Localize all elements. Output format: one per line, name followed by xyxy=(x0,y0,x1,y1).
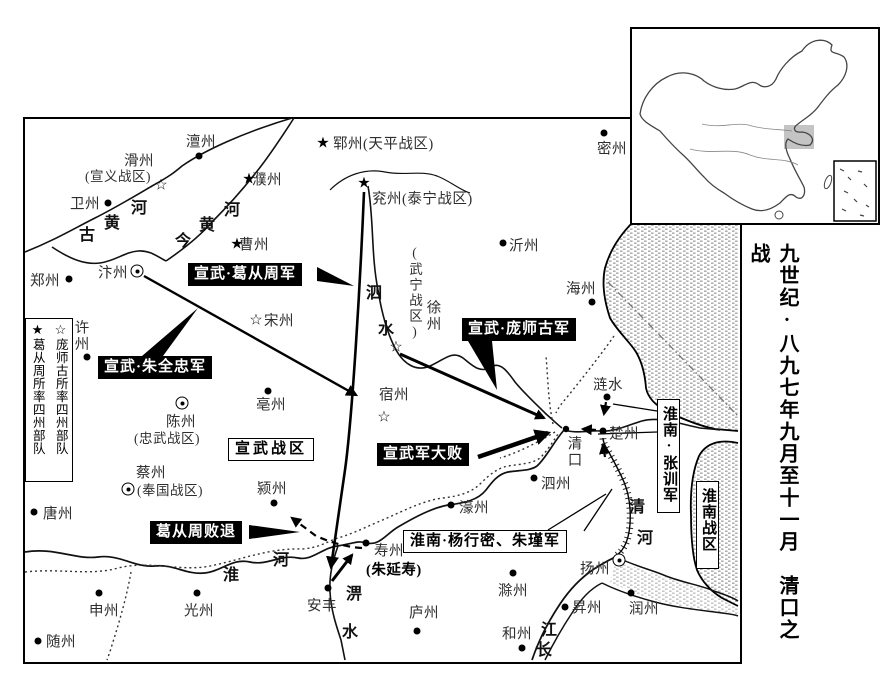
haizhou-dot xyxy=(589,299,596,306)
caizhou-note: (奉国战区) xyxy=(137,479,203,499)
bozhou-label: 亳州 xyxy=(256,394,286,415)
zone-xuanwu-box: 宣武战区 xyxy=(228,438,314,461)
luzhou-dot xyxy=(414,628,421,635)
shengzhou-dot xyxy=(562,604,569,611)
river-old-yellow-char-2: 河 xyxy=(131,194,147,218)
china-inset-map xyxy=(630,27,880,225)
xuzhou-xu-label: 许州 xyxy=(71,320,92,353)
label-ge-retreat: 葛从周败退 xyxy=(150,521,242,544)
mizhou-label: 密州 xyxy=(597,138,627,159)
river-old-yellow-char-1: 黄 xyxy=(104,209,120,233)
yanzhou-black-star-icon: ★ xyxy=(357,177,370,192)
legend-white-star-label: 庞师古所率四州部队 xyxy=(54,338,67,455)
river-qing-char-0: 清 xyxy=(629,493,645,517)
label-zhang-xun-army: 淮南·张训军 xyxy=(657,399,680,513)
legend-box: ★ 葛从周所率四州部队 ☆ 庞师古所率四州部队 xyxy=(25,318,73,482)
taiwan-island xyxy=(823,174,833,189)
runzhou-dot xyxy=(628,590,635,597)
xuzhou-xu-dot xyxy=(84,354,91,361)
wedge-retreat-label xyxy=(249,525,300,539)
legend-black-star-label: 葛从周所率四州部队 xyxy=(31,338,44,455)
luzhou-label: 庐州 xyxy=(409,602,439,623)
wedge-ge-label xyxy=(317,267,354,286)
river-si-char-0: 泗 xyxy=(366,279,382,303)
guangzhou-label: 光州 xyxy=(184,600,214,621)
songzhou-white-star-icon: ☆ xyxy=(249,314,262,329)
tangzhou-dot xyxy=(31,509,38,516)
hainan-island xyxy=(775,211,783,219)
legend-black-star-icon: ★ xyxy=(32,323,44,336)
anfeng-label: 安丰 xyxy=(307,595,337,616)
anfeng-dot xyxy=(325,585,332,592)
leader-yangzhu-2 xyxy=(584,489,612,531)
huazhou-white-star-icon: ☆ xyxy=(154,179,167,194)
chuzhou-chu-label: 滁州 xyxy=(498,580,528,601)
battle-map: ☆ ★ ★ ★ ★ ☆ ☆ ☆ 澶州 滑州 (宣义战区) 卫州 郑州 汴州 许州… xyxy=(0,0,895,687)
xuzhou-white-star-icon: ☆ xyxy=(389,341,402,356)
suzhou-label: 宿州 xyxy=(379,384,409,405)
caizhou-double-circle xyxy=(122,483,135,496)
shengzhou-label: 昇州 xyxy=(572,597,602,618)
south-china-sea-box xyxy=(834,161,876,221)
route-chuzhou-qingkou xyxy=(583,429,596,430)
runzhou-label: 润州 xyxy=(629,598,659,619)
label-yang-zhu-army: 淮南·杨行密、朱瑾军 xyxy=(403,530,567,553)
zone-huainan-box: 淮南战区 xyxy=(696,481,719,569)
label-zhu-quanzhong-army: 宣武·朱全忠军 xyxy=(98,356,212,379)
yangzhou-label: 扬州 xyxy=(580,558,610,579)
songzhou-label: 宋州 xyxy=(264,310,294,331)
route-lianshui-chuzhou xyxy=(604,402,606,414)
suizhou-label: 随州 xyxy=(46,631,76,652)
hezhou-label: 和州 xyxy=(502,623,532,644)
weizhou-dot xyxy=(105,200,112,207)
river-changjiang-char-1: 长 xyxy=(536,636,552,660)
zhengzhou-label: 郑州 xyxy=(30,270,60,291)
river-old-yellow-char-0: 古 xyxy=(79,221,95,245)
leader-zhangxun-1 xyxy=(613,404,657,411)
hezhou-dot xyxy=(519,645,526,652)
label-xuanwu-defeat: 宣武军大败 xyxy=(377,443,469,466)
river-today-yellow-char-2: 河 xyxy=(224,196,240,220)
river-pi-char-1: 水 xyxy=(342,618,358,642)
legend-white-star-icon: ☆ xyxy=(55,323,67,336)
shouzhou-note: (朱延寿) xyxy=(366,559,422,580)
river-today-yellow-char-0: 今 xyxy=(175,227,191,251)
haizhou-label: 海州 xyxy=(566,278,596,299)
river-huai-char-1: 河 xyxy=(273,546,289,570)
legend-black-star-column: ★ 葛从周所率四州部队 xyxy=(31,323,44,481)
weizhou-label: 卫州 xyxy=(70,193,100,214)
caozhou-label: 曹州 xyxy=(239,234,269,255)
shenzhou-dot xyxy=(96,590,103,597)
label-pang-shigu-army: 宣武·庞师古军 xyxy=(462,318,576,341)
chuzhou-chu-dot xyxy=(510,570,517,577)
suizhou-dot xyxy=(35,638,42,645)
lianshui-label: 涟水 xyxy=(593,374,623,395)
river-huai-char-0: 淮 xyxy=(223,561,239,585)
river-qing-char-1: 河 xyxy=(637,524,653,548)
xuzhou-label: 徐州 xyxy=(423,300,444,333)
shouzhou-dot xyxy=(363,540,370,547)
map-title: 九世纪·八九七年九月至十一月 清口之战 xyxy=(744,243,802,651)
river-today-yellow-char-1: 黄 xyxy=(199,211,215,235)
bianzhou-double-circle xyxy=(131,265,144,278)
yizhou-dot xyxy=(500,240,507,247)
puzhou-label: 濮州 xyxy=(252,169,282,190)
route-canal-attack xyxy=(603,445,605,457)
china-outline-graphic xyxy=(632,29,878,223)
route-ge-congzhou xyxy=(331,192,364,567)
xuzhou-note: (武宁战区) xyxy=(404,245,424,341)
qingkou-junction-dot xyxy=(563,426,569,432)
chanzhou-dot xyxy=(196,153,203,160)
wedge-zhu-label xyxy=(142,308,198,356)
shenzhou-label: 申州 xyxy=(89,600,119,621)
yunzhou-label: 郓州(天平战区) xyxy=(333,133,434,154)
guangzhou-dot xyxy=(194,590,201,597)
river-pi-char-0: 淠 xyxy=(346,580,362,604)
yizhou-label: 沂州 xyxy=(509,235,539,256)
route-anfeng-shouzhou xyxy=(332,555,352,581)
suzhou-white-star-icon: ☆ xyxy=(377,411,390,426)
bianzhou-label: 汴州 xyxy=(98,262,128,283)
route-pang-shigu xyxy=(400,354,544,418)
arrow-defeat xyxy=(478,433,548,457)
shouzhou-label: 寿州 xyxy=(374,540,404,561)
chuzhou-dot xyxy=(600,428,607,435)
yingzhou-label: 颍州 xyxy=(257,478,287,499)
yangzhou-double-circle xyxy=(613,554,626,567)
sizhou-dot xyxy=(531,475,538,482)
yanzhou-label: 兖州(泰宁战区) xyxy=(372,188,473,209)
tangzhou-label: 唐州 xyxy=(43,503,73,524)
lianshui-dot xyxy=(604,394,611,401)
boundary-qingkou-north xyxy=(546,356,553,424)
qingkou-label: 清口 xyxy=(564,436,585,469)
label-ge-congzhou-army: 宣武·葛从周军 xyxy=(188,263,302,286)
haozhou-dot xyxy=(448,502,455,509)
huazhou-note: (宣义战区) xyxy=(85,165,151,185)
yingzhou-dot xyxy=(271,500,278,507)
haozhou-label: 濠州 xyxy=(459,497,489,518)
legend-white-star-column: ☆ 庞师古所率四州部队 xyxy=(54,323,67,481)
chanzhou-label: 澶州 xyxy=(186,131,216,152)
chuzhou-label: 楚州 xyxy=(609,423,639,444)
chenzhou-note: (忠武战区) xyxy=(134,427,200,447)
river-si-char-1: 水 xyxy=(378,315,394,339)
yunzhou-black-star-icon: ★ xyxy=(316,137,329,152)
zhengzhou-dot xyxy=(66,276,73,283)
sizhou-label: 泗州 xyxy=(541,473,571,494)
chenzhou-double-circle xyxy=(176,397,189,410)
mizhou-dot xyxy=(601,130,608,137)
